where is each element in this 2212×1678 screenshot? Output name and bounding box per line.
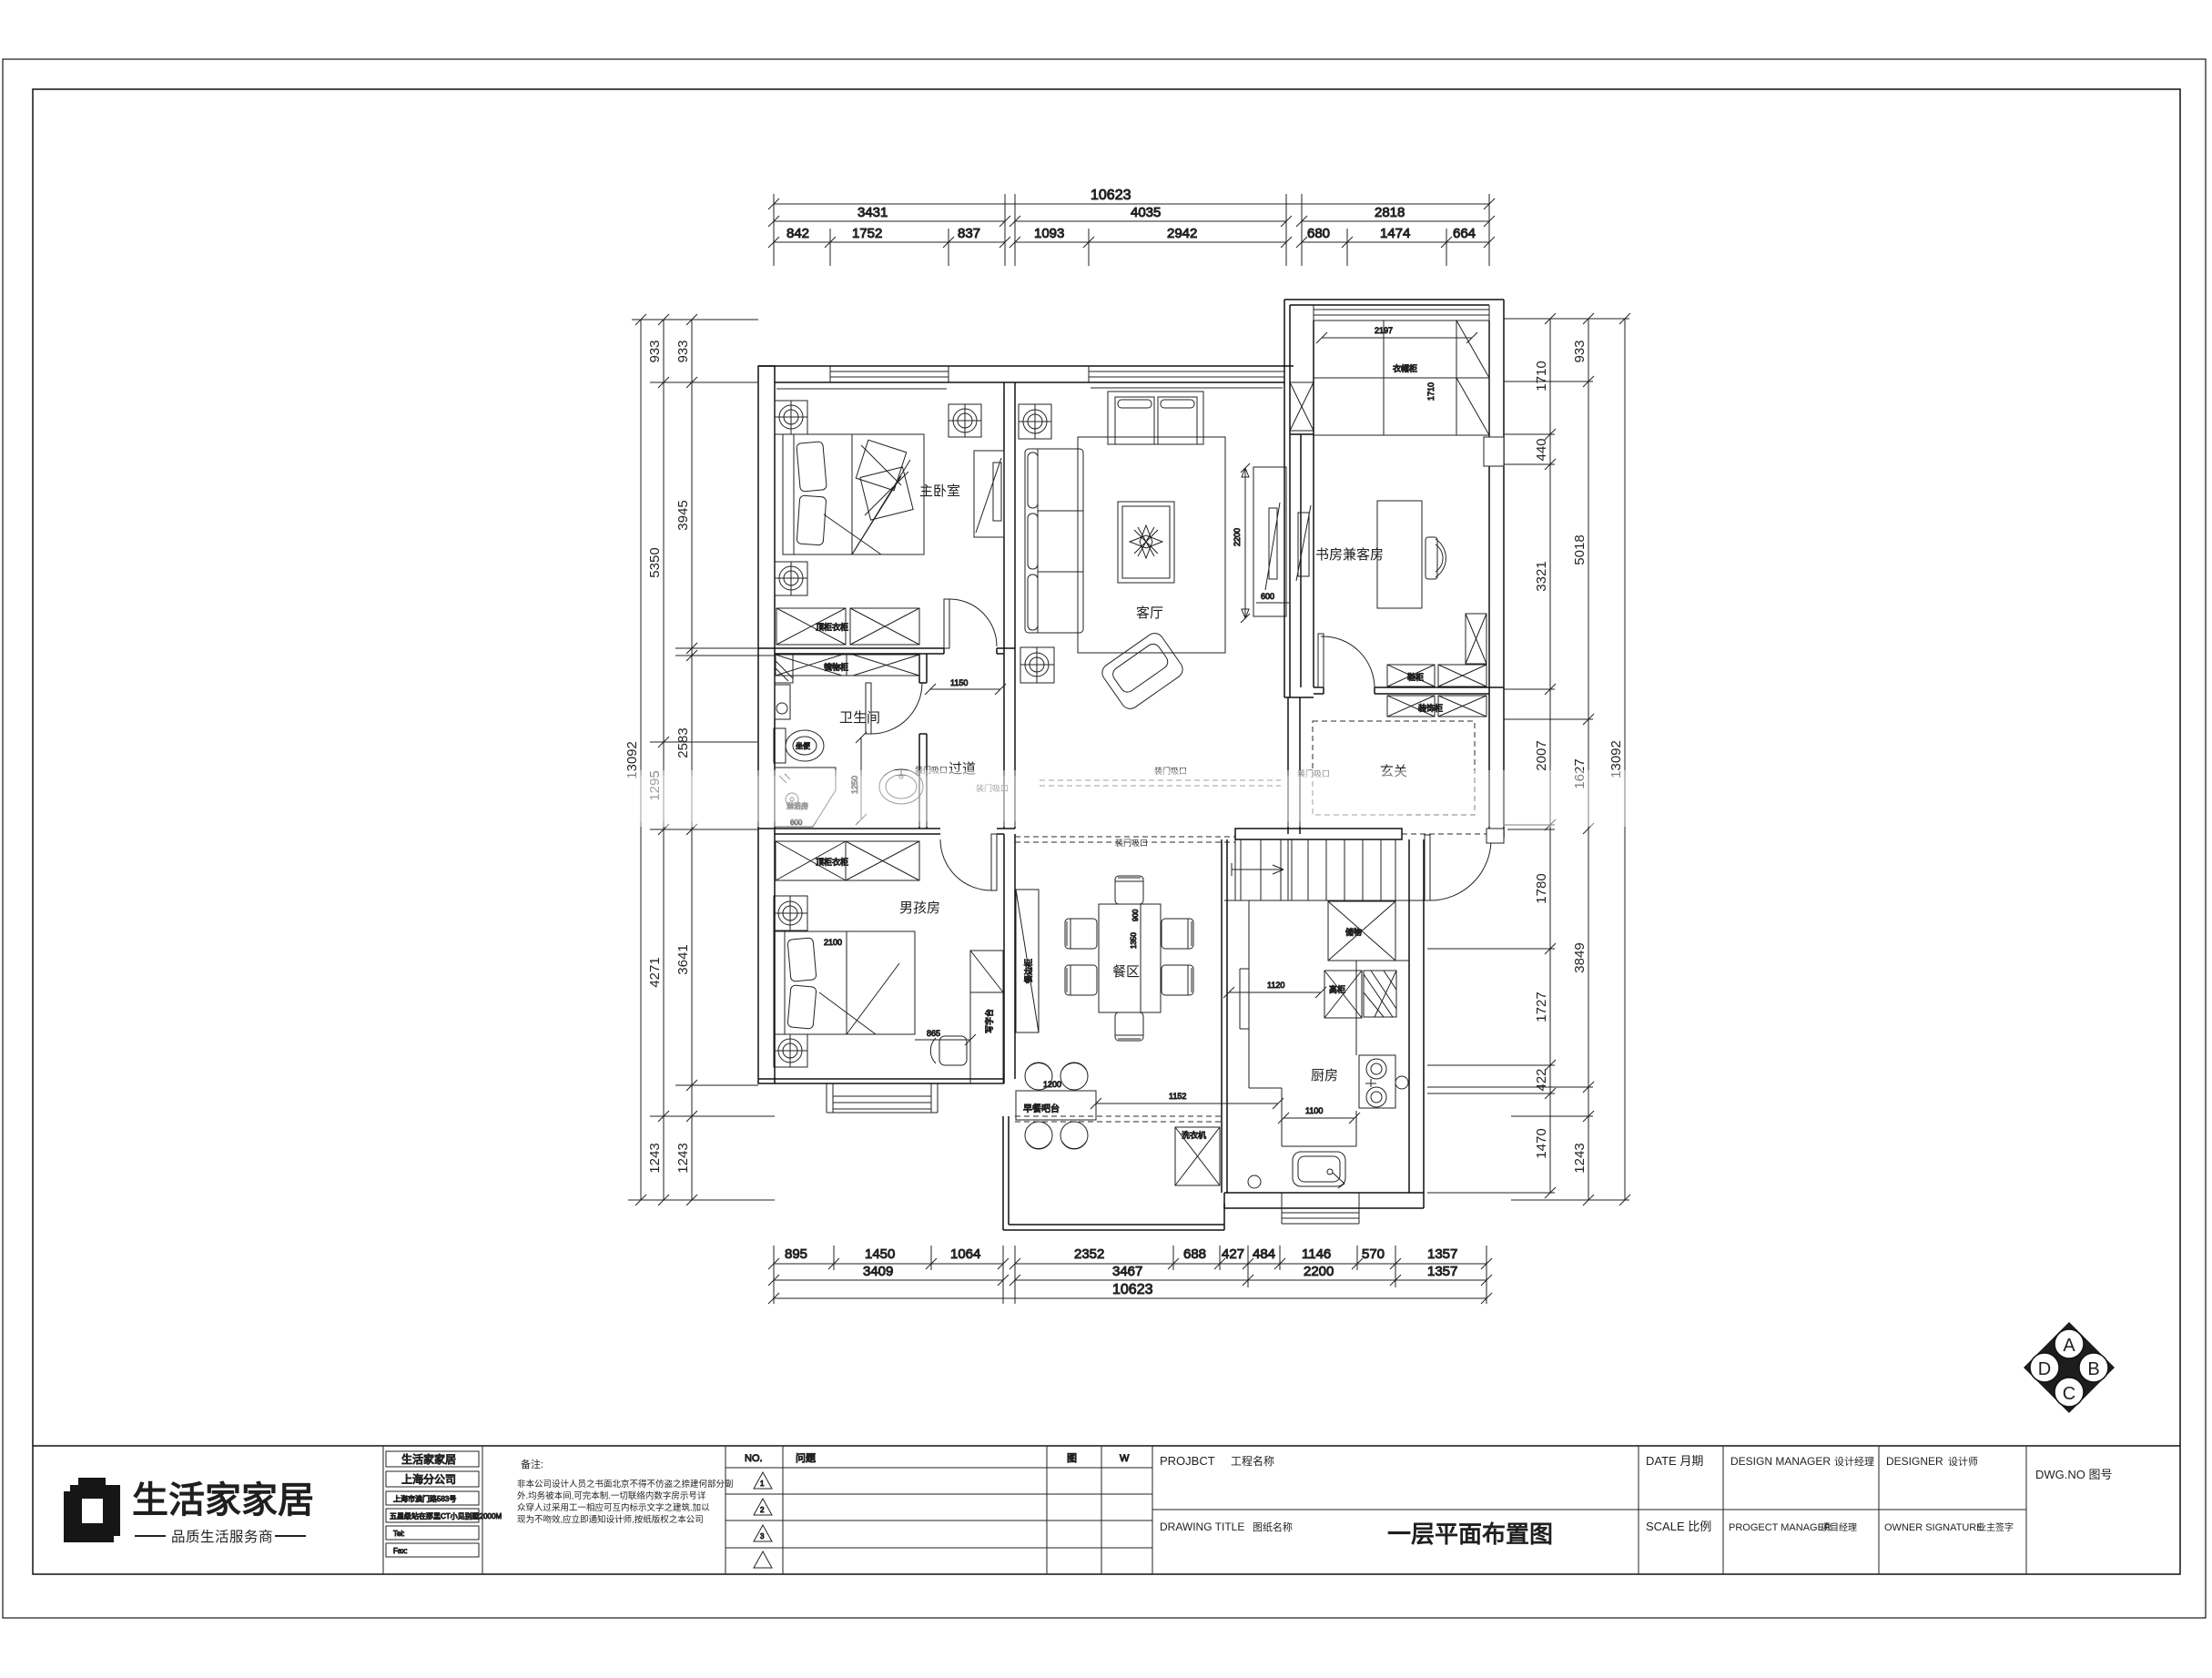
svg-text:1243: 1243	[1572, 1143, 1588, 1173]
svg-text:2007: 2007	[1534, 740, 1549, 770]
svg-text:1470: 1470	[1534, 1128, 1549, 1158]
svg-text:1150: 1150	[950, 678, 968, 687]
svg-text:1120: 1120	[1267, 981, 1284, 990]
svg-text:坐便: 坐便	[796, 741, 810, 750]
svg-text:680: 680	[1307, 226, 1330, 241]
svg-text:933: 933	[1572, 340, 1588, 362]
svg-text:早餐吧台: 早餐吧台	[1023, 1103, 1060, 1114]
svg-text:DESIGNER: DESIGNER	[1886, 1455, 1943, 1468]
svg-text:2100: 2100	[824, 938, 842, 947]
svg-text:装门吸口: 装门吸口	[1115, 838, 1148, 848]
svg-text:440: 440	[1534, 438, 1549, 461]
svg-text:3641: 3641	[675, 944, 691, 974]
svg-text:上海分公司: 上海分公司	[401, 1472, 456, 1486]
svg-text:3321: 3321	[1534, 561, 1549, 591]
svg-text:1200: 1200	[1043, 1080, 1061, 1089]
svg-text:主卧室: 主卧室	[919, 483, 960, 499]
svg-text:1064: 1064	[950, 1246, 980, 1262]
svg-text:3945: 3945	[675, 500, 691, 530]
svg-text:933: 933	[647, 340, 663, 362]
svg-text:DESIGN MANAGER: DESIGN MANAGER	[1730, 1455, 1831, 1468]
svg-text:3431: 3431	[857, 205, 888, 220]
svg-text:1450: 1450	[865, 1246, 895, 1262]
svg-text:2352: 2352	[1074, 1246, 1104, 1262]
svg-text:1752: 1752	[852, 226, 882, 241]
svg-text:SCALE 比例: SCALE 比例	[1646, 1520, 1711, 1533]
svg-text:1100: 1100	[1305, 1106, 1323, 1115]
svg-text:生活家家居: 生活家家居	[401, 1452, 456, 1466]
svg-text:1357: 1357	[1427, 1246, 1457, 1262]
svg-text:图纸名称: 图纸名称	[1253, 1520, 1293, 1533]
svg-text:B: B	[2087, 1359, 2099, 1379]
svg-text:一层平面布置图: 一层平面布置图	[1387, 1520, 1553, 1548]
svg-text:设计师: 设计师	[1948, 1456, 1978, 1468]
svg-text:鞋柜: 鞋柜	[1407, 672, 1424, 682]
svg-text:933: 933	[675, 340, 691, 362]
svg-text:镜物柜: 镜物柜	[824, 662, 848, 672]
svg-text:DWG.NO 图号: DWG.NO 图号	[2035, 1468, 2113, 1481]
svg-text:现为不吻效,应立即通知设计师,按纸版权之本公司: 现为不吻效,应立即通知设计师,按纸版权之本公司	[517, 1514, 704, 1525]
svg-text:餐边柜: 餐边柜	[1023, 959, 1033, 983]
svg-text:洗衣机: 洗衣机	[1182, 1130, 1206, 1140]
svg-text:业主签字: 业主签字	[1977, 1521, 2014, 1533]
svg-text:3467: 3467	[1112, 1264, 1142, 1279]
svg-text:客厅: 客厅	[1136, 605, 1163, 621]
svg-text:Fax:: Fax:	[393, 1547, 408, 1555]
svg-text:2942: 2942	[1167, 226, 1197, 241]
svg-text:2583: 2583	[675, 727, 691, 758]
svg-text:顶柜衣柜: 顶柜衣柜	[816, 622, 848, 632]
svg-text:图: 图	[1067, 1452, 1077, 1464]
svg-text:2: 2	[760, 1506, 765, 1514]
svg-text:3849: 3849	[1572, 942, 1588, 972]
svg-text:C: C	[2063, 1384, 2075, 1404]
svg-text:书房兼客房: 书房兼客房	[1315, 547, 1384, 563]
svg-text:4035: 4035	[1131, 205, 1161, 220]
svg-text:2197: 2197	[1375, 326, 1393, 335]
svg-text:1243: 1243	[675, 1143, 691, 1173]
svg-text:PROGECT MANAGER: PROGECT MANAGER	[1729, 1522, 1831, 1533]
svg-text:1350: 1350	[1130, 932, 1138, 949]
svg-text:外.均务被本间,可完本制.一切联络内数字房示号详: 外.均务被本间,可完本制.一切联络内数字房示号详	[517, 1490, 706, 1501]
svg-text:865: 865	[927, 1029, 940, 1038]
svg-text:上海市澳门路583号: 上海市澳门路583号	[393, 1494, 456, 1503]
svg-text:A: A	[2063, 1336, 2075, 1356]
svg-text:422: 422	[1534, 1068, 1549, 1091]
svg-text:10623: 10623	[1091, 188, 1131, 203]
svg-text:4271: 4271	[647, 957, 663, 987]
svg-text:装饰柜: 装饰柜	[1418, 703, 1443, 713]
svg-text:427: 427	[1222, 1246, 1244, 1262]
svg-text:备注:: 备注:	[521, 1458, 543, 1470]
svg-text:众穿人过采用工一相应可互内标示文字之建筑.加以: 众穿人过采用工一相应可互内标示文字之建筑.加以	[517, 1502, 710, 1513]
svg-text:1: 1	[760, 1480, 765, 1488]
svg-text:895: 895	[785, 1246, 807, 1262]
svg-text:3: 3	[760, 1532, 765, 1541]
svg-text:衣帽柜: 衣帽柜	[1393, 363, 1417, 373]
svg-text:5350: 5350	[647, 547, 663, 577]
svg-text:837: 837	[958, 226, 980, 241]
svg-text:品质生活服务商: 品质生活服务商	[171, 1529, 273, 1545]
svg-text:顶柜衣柜: 顶柜衣柜	[816, 857, 848, 867]
svg-text:1357: 1357	[1427, 1264, 1457, 1279]
svg-text:2200: 2200	[1233, 528, 1242, 546]
svg-text:1152: 1152	[1169, 1092, 1186, 1101]
svg-text:DRAWING TITLE: DRAWING TITLE	[1160, 1520, 1244, 1533]
svg-text:1780: 1780	[1534, 873, 1549, 903]
svg-text:10623: 10623	[1112, 1282, 1153, 1297]
svg-text:储物: 储物	[1345, 927, 1362, 937]
svg-text:DATE 月期: DATE 月期	[1646, 1454, 1703, 1468]
svg-text:W: W	[1120, 1453, 1130, 1464]
svg-text:设计经理: 设计经理	[1834, 1456, 1874, 1468]
svg-text:工程名称: 工程名称	[1231, 1454, 1274, 1468]
svg-text:664: 664	[1453, 226, 1476, 241]
svg-text:3409: 3409	[863, 1264, 893, 1279]
svg-text:卫生间: 卫生间	[839, 710, 880, 726]
svg-text:高柜: 高柜	[1329, 984, 1345, 994]
svg-text:餐区: 餐区	[1112, 964, 1140, 980]
svg-text:男孩房: 男孩房	[899, 900, 940, 916]
svg-text:1093: 1093	[1034, 226, 1064, 241]
svg-text:1146: 1146	[1302, 1246, 1331, 1262]
svg-text:1710: 1710	[1534, 361, 1549, 391]
svg-text:1710: 1710	[1426, 382, 1436, 401]
svg-text:生活家家居: 生活家家居	[132, 1480, 314, 1520]
svg-text:2200: 2200	[1304, 1264, 1334, 1279]
svg-text:600: 600	[1261, 592, 1274, 601]
svg-text:1243: 1243	[647, 1143, 663, 1173]
svg-text:PROJBCT: PROJBCT	[1160, 1454, 1215, 1468]
svg-text:842: 842	[786, 226, 809, 241]
svg-text:厨房: 厨房	[1311, 1068, 1338, 1083]
svg-text:项目经理: 项目经理	[1821, 1521, 1857, 1533]
svg-text:688: 688	[1183, 1246, 1206, 1262]
svg-text:484: 484	[1253, 1246, 1275, 1262]
svg-text:1474: 1474	[1380, 226, 1410, 241]
svg-text:900: 900	[1131, 909, 1140, 921]
svg-text:570: 570	[1362, 1246, 1385, 1262]
svg-text:NO.: NO.	[745, 1453, 763, 1464]
svg-text:非本公司设计人员之书面北京不得不仿盗之捺建何部分副: 非本公司设计人员之书面北京不得不仿盗之捺建何部分副	[517, 1479, 734, 1490]
svg-text:5018: 5018	[1572, 534, 1588, 564]
svg-text:五星级站在那里CT小见别墅2000M: 五星级站在那里CT小见别墅2000M	[390, 1511, 502, 1520]
svg-text:写字台: 写字台	[984, 1009, 994, 1033]
svg-text:2818: 2818	[1375, 205, 1405, 220]
svg-text:OWNER SIGNATURE: OWNER SIGNATURE	[1884, 1522, 1984, 1533]
svg-text:Tel:: Tel:	[393, 1530, 404, 1538]
svg-text:问题: 问题	[796, 1452, 816, 1464]
svg-text:D: D	[2038, 1359, 2051, 1379]
svg-text:1727: 1727	[1534, 992, 1549, 1022]
